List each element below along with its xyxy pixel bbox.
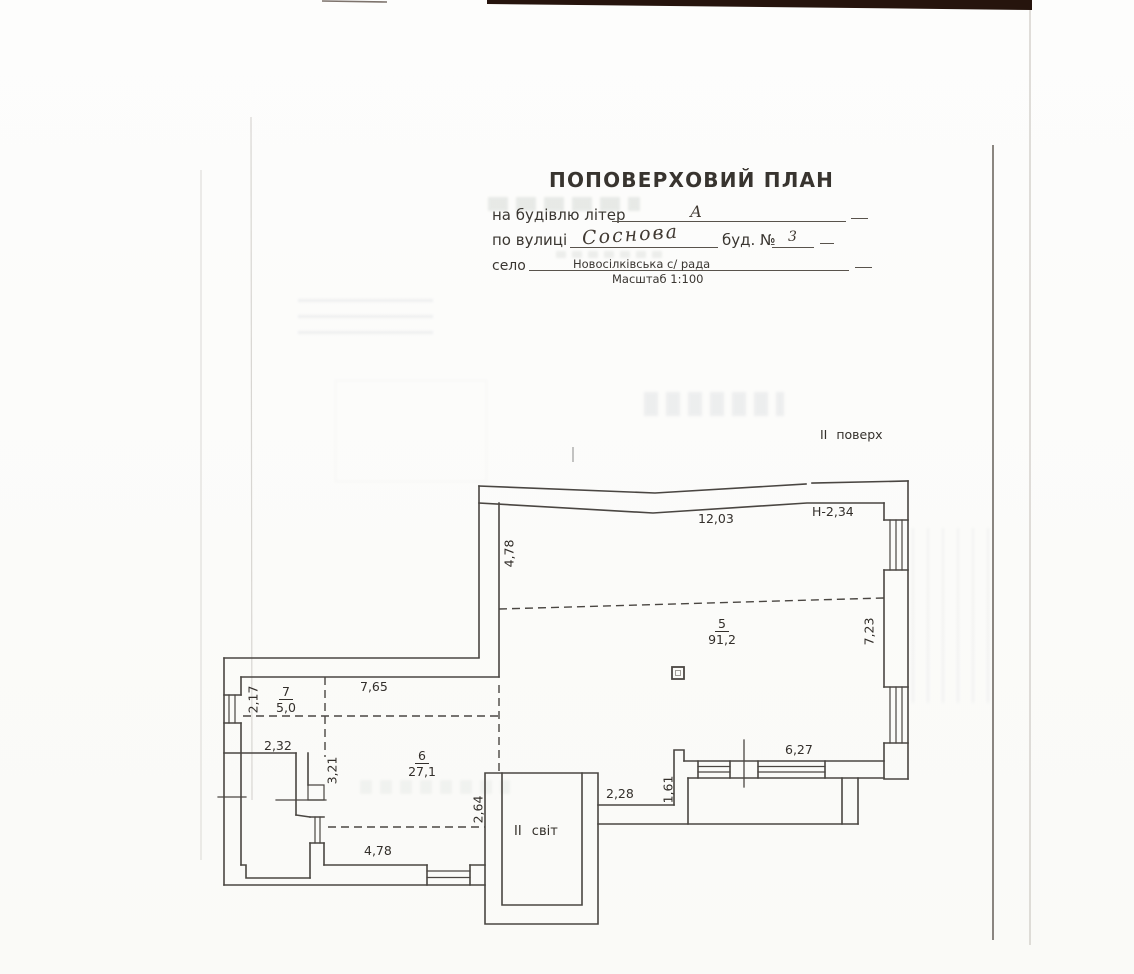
- dim-wing-top: 7,65: [360, 679, 388, 694]
- dim-right-side: 7,23: [862, 615, 877, 649]
- dim-notch-height: 1,61: [661, 773, 676, 807]
- room-5-area: 91,2: [708, 632, 736, 647]
- room-5-label: 5 91,2: [702, 617, 742, 647]
- room-6-number: 6: [415, 749, 429, 764]
- floor-plan-drawing: [0, 0, 1134, 974]
- room-7-label: 7 5,0: [268, 685, 304, 715]
- room-7-number: 7: [279, 685, 293, 700]
- dim-left-upper: 4,78: [502, 537, 517, 571]
- dim-height-note: Н-2,34: [812, 504, 854, 519]
- dim-wing-left: 2,17: [246, 683, 261, 717]
- dim-wing-inner: 2,32: [264, 738, 292, 753]
- room-5-number: 5: [715, 617, 729, 632]
- room-7-area: 5,0: [276, 700, 296, 715]
- dim-top-width: 12,03: [698, 511, 734, 526]
- dim-bottom-right: 6,27: [785, 742, 813, 757]
- light-well-label: ІІ світ: [514, 824, 558, 839]
- scanned-floor-plan-page: ПОПОВЕРХОВИЙ ПЛАН на будівлю літер А по …: [0, 0, 1134, 974]
- dim-lightwell-side: 2,64: [471, 793, 486, 827]
- dim-wing-bottom: 4,78: [364, 843, 392, 858]
- room-6-label: 6 27,1: [403, 749, 441, 779]
- room-6-area: 27,1: [408, 764, 436, 779]
- dim-corridor-width: 2,28: [606, 786, 634, 801]
- dim-wing-vert: 3,21: [325, 754, 340, 788]
